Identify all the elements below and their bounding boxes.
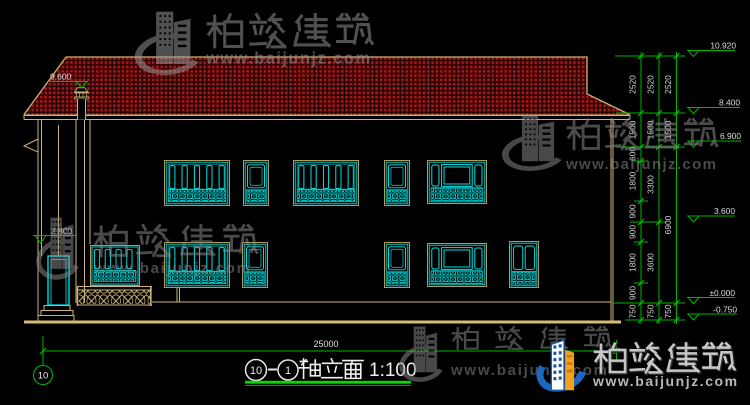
svg-text:-0.750: -0.750 [713,305,737,315]
svg-text:1800: 1800 [628,171,638,190]
svg-text:www.baijunjz.com: www.baijunjz.com [93,260,252,277]
svg-text:10: 10 [38,371,49,382]
svg-text:900: 900 [628,204,638,218]
svg-text:900: 900 [628,225,638,239]
svg-text:8.400: 8.400 [719,98,740,108]
svg-text:1: 1 [285,365,291,377]
svg-text:25000: 25000 [313,339,338,349]
svg-text:2520: 2520 [646,75,656,94]
svg-text:6.900: 6.900 [720,131,741,141]
svg-text:10.920: 10.920 [710,41,736,51]
svg-text:3600: 3600 [646,253,656,272]
svg-text:750: 750 [646,304,656,318]
svg-text:2520: 2520 [663,75,673,94]
svg-text:2520: 2520 [628,75,638,94]
svg-text:900: 900 [628,286,638,300]
svg-text:9.600: 9.600 [50,72,72,82]
svg-text:750: 750 [628,304,638,318]
svg-text:±0.000: ±0.000 [709,288,735,298]
svg-text:www.baijunjz.com: www.baijunjz.com [592,373,739,389]
svg-text:10: 10 [250,365,262,377]
svg-text:www.baijunjz.com: www.baijunjz.com [565,156,717,173]
svg-text:750: 750 [663,304,673,318]
svg-text:3.600: 3.600 [714,206,735,216]
svg-text:3300: 3300 [646,175,656,194]
svg-text:www.baijunjz.com: www.baijunjz.com [205,50,371,68]
svg-text:6900: 6900 [663,215,673,234]
svg-text:1800: 1800 [628,253,638,272]
svg-text:www.baijunjz.com: www.baijunjz.com [450,362,609,379]
